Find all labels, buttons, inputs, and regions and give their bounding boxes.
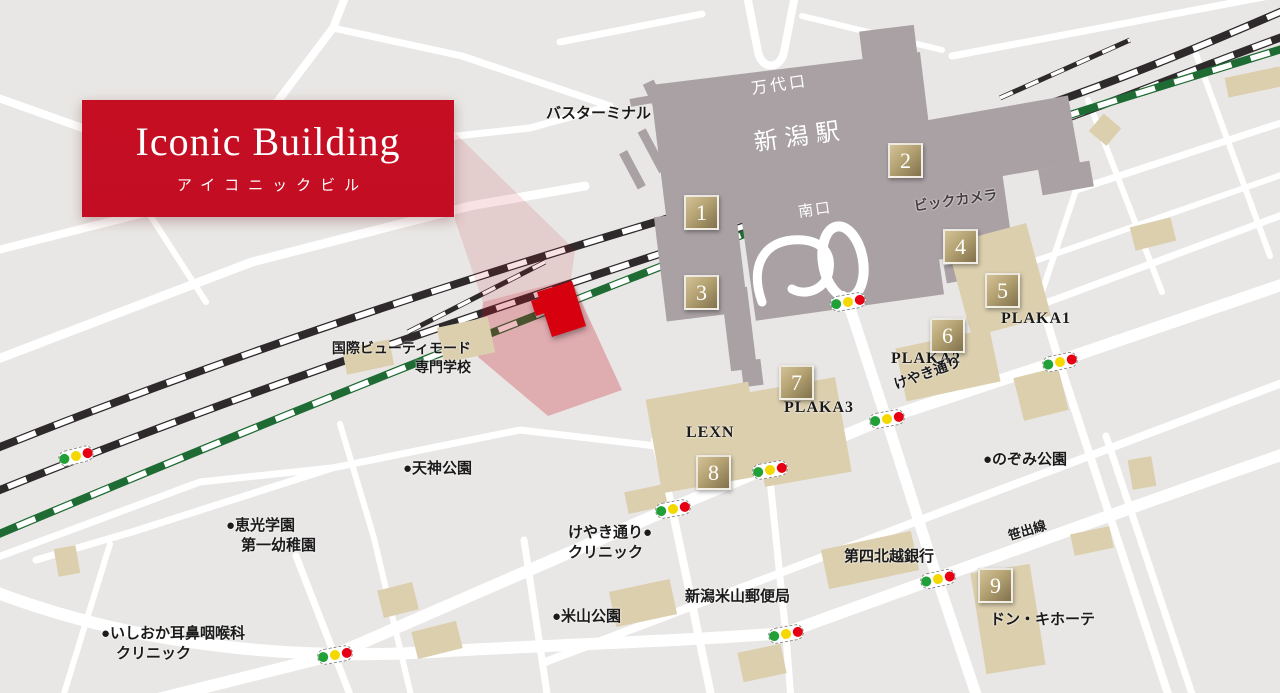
station-tower bbox=[859, 25, 920, 81]
plaka3-building bbox=[748, 377, 851, 487]
lexn-building bbox=[646, 382, 765, 494]
banner-title: Iconic Building bbox=[136, 122, 401, 162]
map-stage: バスターミナル万代口新潟駅南口ビックカメラPLAKA1PLAKA2PLAKA3L… bbox=[0, 0, 1280, 693]
title-banner: Iconic Building アイコニックビル bbox=[82, 100, 454, 217]
banner-subtitle: アイコニックビル bbox=[168, 174, 368, 195]
